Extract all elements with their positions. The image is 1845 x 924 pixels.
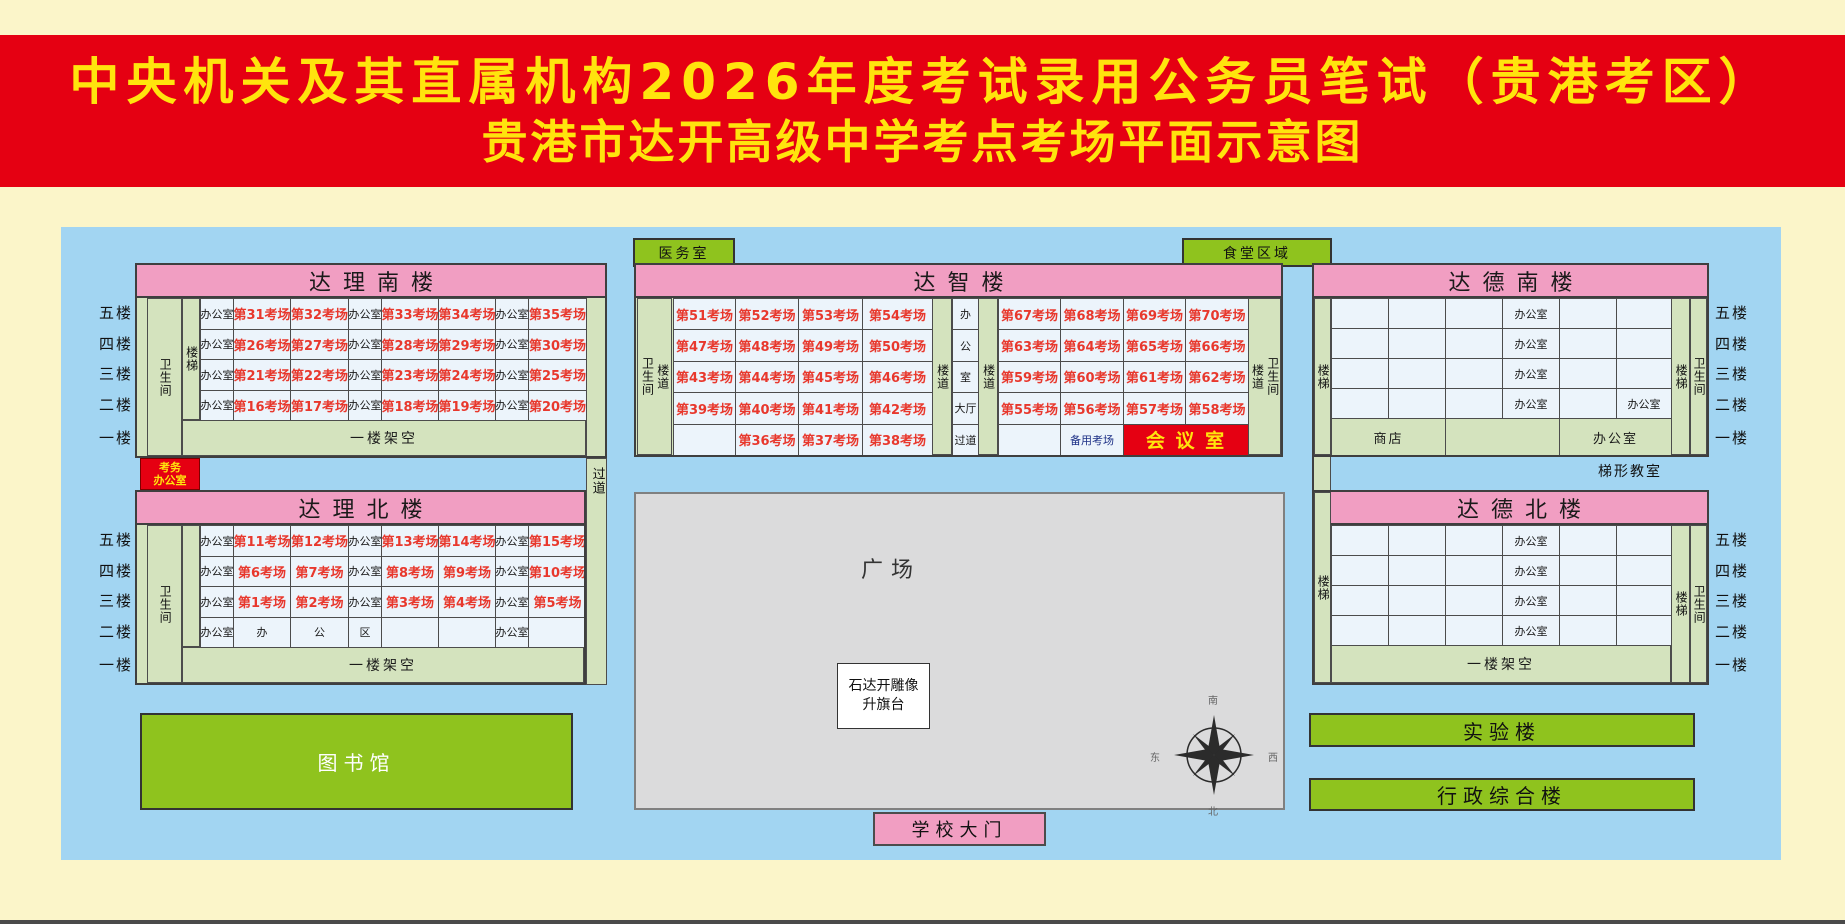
- stairwell-column: 楼梯: [1314, 298, 1331, 455]
- grid-row: 办公室第26考场第27考场办公室第28考场第29考场办公室第30考场: [201, 330, 587, 361]
- exam-room-cell: 第41考场: [799, 393, 863, 424]
- empty-cell: [1446, 329, 1503, 359]
- building-title: 达德南楼: [1314, 265, 1707, 298]
- empty-cell: [1446, 299, 1503, 329]
- grid-row: 办公室第21考场第22考场办公室第23考场第24考场办公室第25考场: [201, 360, 587, 391]
- exam-affairs-office-line1: 考务: [159, 461, 181, 474]
- room-cell: 区: [349, 618, 382, 649]
- empty-cell: [1617, 556, 1672, 586]
- empty-cell: [1332, 586, 1389, 616]
- corridor-strip: [586, 298, 605, 456]
- building-dade-north: 楼梯 达德北楼 办公室办公室办公室办公室 一楼架空 楼梯 卫生间: [1312, 490, 1709, 685]
- empty-cell: [1332, 389, 1389, 419]
- building-dali-south: 达理南楼 卫生间 楼梯 办公室第31考场第32考场办公室第33考场第34考场办公…: [135, 263, 607, 458]
- exam-room-cell: 第20考场: [529, 391, 587, 422]
- compass-south-label: 南: [1208, 692, 1218, 707]
- empty-cell: [1332, 526, 1389, 556]
- room-cell: 办公室: [201, 557, 234, 588]
- exam-room-cell: 第18考场: [382, 391, 439, 422]
- floor-label: 五楼: [98, 302, 134, 323]
- building-body: 卫生间 办公室第11考场第12考场办公室第13考场第14考场办公室第15考场办公…: [137, 525, 584, 683]
- hallway-restroom-column: 楼道 卫生间: [1248, 298, 1281, 455]
- stairwell-column: 楼梯: [1671, 525, 1690, 683]
- lab-building: 实验楼: [1309, 713, 1695, 747]
- empty-cell: [1617, 329, 1672, 359]
- grid-row: 办: [953, 299, 979, 330]
- office-room-grid: 办公室办公室办公室办公室办公室: [1331, 298, 1672, 419]
- grid-row: 第43考场第44考场第45考场第46考场: [674, 362, 933, 393]
- room-cell: 办公室: [201, 391, 234, 422]
- empty-cell: [1617, 359, 1672, 389]
- exam-room-cell: 第57考场: [1124, 393, 1186, 424]
- exam-room-cell: 第63考场: [999, 330, 1061, 361]
- grid-row: 大厅: [953, 393, 979, 424]
- compass-north-label: 北: [1208, 803, 1218, 818]
- building-title: 达德北楼: [1331, 492, 1707, 525]
- exam-room-cell: 第23考场: [382, 360, 439, 391]
- room-cell: 办: [953, 299, 979, 330]
- exam-room-cell: 第11考场: [234, 526, 291, 557]
- statue-flag-platform: 石达开雕像 升旗台: [837, 663, 930, 729]
- floor-label: 二楼: [98, 394, 134, 415]
- empty-cell: [1560, 616, 1617, 646]
- exam-room-cell: 第40考场: [736, 393, 799, 424]
- room-cell: 办公室: [349, 526, 382, 557]
- exam-room-cell: 第22考场: [291, 360, 349, 391]
- floor-label: 三楼: [1714, 590, 1750, 611]
- room-cell: 办公室: [496, 299, 529, 330]
- admin-building: 行政综合楼: [1309, 778, 1695, 811]
- empty-cell: [1446, 419, 1560, 456]
- exam-room-cell: 第58考场: [1186, 393, 1249, 424]
- exam-room-cell: 第65考场: [1124, 330, 1186, 361]
- exam-room-cell: 第69考场: [1124, 299, 1186, 330]
- empty-cell: [1389, 329, 1446, 359]
- exam-room-cell: 第17考场: [291, 391, 349, 422]
- school-gate: 学校大门: [873, 812, 1046, 846]
- exam-room-cell: 第47考场: [674, 330, 736, 361]
- exam-room-cell: 第70考场: [1186, 299, 1249, 330]
- building-title: 达智楼: [636, 265, 1281, 298]
- stairwell-column: 楼梯: [1314, 492, 1331, 683]
- exam-room-cell: 第6考场: [234, 557, 291, 588]
- grid-row: 办公室: [1332, 616, 1672, 646]
- grid-row: 过道: [953, 425, 979, 456]
- floor-labels-dade-north: 五楼四楼三楼二楼一楼: [1714, 523, 1750, 685]
- floor-label: 一楼: [1714, 427, 1750, 448]
- exam-room-cell: 第26考场: [234, 330, 291, 361]
- exam-room-cell: 第5考场: [529, 587, 586, 618]
- exam-affairs-office-line2: 办公室: [154, 474, 187, 487]
- room-cell: 商店: [1332, 419, 1446, 456]
- exam-room-cell: 第55考场: [999, 393, 1061, 424]
- grid-row: 第55考场第56考场第57考场第58考场: [999, 393, 1249, 424]
- room-cell: 办公室: [1503, 359, 1560, 389]
- room-cell: 办公室: [349, 330, 382, 361]
- room-cell: 办公室: [201, 330, 234, 361]
- empty-cell: [1332, 359, 1389, 389]
- room-cell: 办: [234, 618, 291, 649]
- room-cell: 办公室: [1503, 586, 1560, 616]
- room-cell: 办公室: [496, 360, 529, 391]
- building-dali-north: 达理北楼 卫生间 办公室第11考场第12考场办公室第13考场第14考场办公室第1…: [135, 490, 586, 685]
- exam-room-cell: 第15考场: [529, 526, 586, 557]
- building-body: 卫生间 楼道 第51考场第52考场第53考场第54考场第47考场第48考场第49…: [636, 298, 1281, 455]
- plaza: 广场 石达开雕像 升旗台 南 北 东 西: [634, 492, 1285, 810]
- office-room-grid: 办公室办公室办公室办公室: [1331, 525, 1672, 646]
- meeting-cell: 会 议 室: [1124, 425, 1249, 456]
- empty-cell: [1332, 556, 1389, 586]
- grid-row: 办公室第1考场第2考场办公室第3考场第4考场办公室第5考场: [201, 587, 586, 618]
- exam-room-cell: 第53考场: [799, 299, 863, 330]
- exam-room-cell: 第38考场: [863, 425, 933, 456]
- banner: 中央机关及其直属机构2026年度考试录用公务员笔试（贵港考区） 贵港市达开高级中…: [0, 35, 1845, 187]
- plaza-label: 广场: [846, 552, 936, 584]
- exam-room-cell: 第43考场: [674, 362, 736, 393]
- room-cell: 办公室: [1560, 419, 1672, 456]
- empty-cell: [1332, 299, 1389, 329]
- exam-room-cell: 第50考场: [863, 330, 933, 361]
- exam-room-cell: 第51考场: [674, 299, 736, 330]
- exam-room-cell: 第19考场: [439, 391, 496, 422]
- exam-room-cell: 第28考场: [382, 330, 439, 361]
- exam-room-cell: 第59考场: [999, 362, 1061, 393]
- empty-cell: [1560, 586, 1617, 616]
- room-cell: 办公室: [201, 360, 234, 391]
- exam-room-cell: 第24考场: [439, 360, 496, 391]
- floor-label: 二楼: [1714, 621, 1750, 642]
- empty-cell: [999, 425, 1061, 456]
- floor-label: 二楼: [98, 621, 134, 642]
- room-cell: 办公室: [349, 587, 382, 618]
- room-cell: 办公室: [349, 557, 382, 588]
- spare-cell: 备用考场: [1061, 425, 1124, 456]
- building-title: 达理南楼: [137, 265, 605, 298]
- floor-labels-dade-south: 五楼四楼三楼二楼一楼: [1714, 296, 1750, 458]
- statue-label-line1: 石达开雕像: [849, 677, 919, 696]
- empty-cell: [1617, 299, 1672, 329]
- stairwell-column: 楼梯: [1671, 298, 1690, 455]
- room-cell: 大厅: [953, 393, 979, 424]
- exam-room-cell: 第61考场: [1124, 362, 1186, 393]
- floor-label: 三楼: [98, 590, 134, 611]
- corridor: 过道: [586, 458, 607, 685]
- banner-title-line1: 中央机关及其直属机构2026年度考试录用公务员笔试（贵港考区）: [69, 51, 1775, 113]
- floor-label: 四楼: [1714, 333, 1750, 354]
- stairwell-column: 楼梯: [182, 298, 200, 420]
- exam-room-cell: 第34考场: [439, 299, 496, 330]
- exam-room-grid-west: 第51考场第52考场第53考场第54考场第47考场第48考场第49考场第50考场…: [673, 298, 933, 456]
- empty-cell: [1617, 616, 1672, 646]
- grid-row: 公: [953, 330, 979, 361]
- building-title: 达理北楼: [137, 492, 584, 525]
- empty-cell: [1389, 556, 1446, 586]
- empty-cell: [1389, 586, 1446, 616]
- exam-room-cell: 第66考场: [1186, 330, 1249, 361]
- empty-cell: [1560, 526, 1617, 556]
- empty-cell: [1560, 389, 1617, 419]
- empty-cell: [1560, 299, 1617, 329]
- exam-room-cell: 第56考场: [1061, 393, 1124, 424]
- floor-label: 三楼: [1714, 363, 1750, 384]
- floor-label: 四楼: [98, 560, 134, 581]
- empty-cell: [1389, 616, 1446, 646]
- grid-row: 办公室第11考场第12考场办公室第13考场第14考场办公室第15考场: [201, 526, 586, 557]
- empty-cell: [1389, 389, 1446, 419]
- room-cell: 公: [291, 618, 349, 649]
- exam-room-cell: 第31考场: [234, 299, 291, 330]
- compass-east-label: 东: [1150, 749, 1160, 764]
- room-cell: 办公室: [349, 391, 382, 422]
- empty-cell: [1617, 526, 1672, 556]
- restroom-column: 卫生间: [147, 525, 182, 683]
- exam-room-cell: 第8考场: [382, 557, 439, 588]
- office-hall-column: 办公室大厅过道: [952, 298, 979, 456]
- exam-affairs-office: 考务 办公室: [140, 458, 200, 490]
- exam-room-cell: 第12考场: [291, 526, 349, 557]
- floor-label: 四楼: [98, 333, 134, 354]
- empty-cell: [1446, 616, 1503, 646]
- room-cell: 办公室: [1503, 299, 1560, 329]
- empty-cell: [1446, 556, 1503, 586]
- grid-row: 第39考场第40考场第41考场第42考场: [674, 393, 933, 424]
- room-cell: 办公室: [496, 557, 529, 588]
- grid-row: 办公室: [1332, 586, 1672, 616]
- exam-site-poster: 中央机关及其直属机构2026年度考试录用公务员笔试（贵港考区） 贵港市达开高级中…: [0, 0, 1845, 924]
- room-cell: 办公室: [496, 618, 529, 649]
- hallway-column: 楼道: [978, 298, 998, 455]
- room-cell: 办公室: [349, 360, 382, 391]
- room-cell: 过道: [953, 425, 979, 456]
- floor-label: 五楼: [1714, 529, 1750, 550]
- exam-room-cell: 第7考场: [291, 557, 349, 588]
- grid-row: 第67考场第68考场第69考场第70考场: [999, 299, 1249, 330]
- grid-row: 办公室第16考场第17考场办公室第18考场第19考场办公室第20考场: [201, 391, 587, 422]
- empty-cell: [1446, 359, 1503, 389]
- room-cell: 办公室: [1503, 389, 1560, 419]
- bottom-edge: [0, 920, 1845, 924]
- floor-label: 五楼: [1714, 302, 1750, 323]
- exam-room-cell: 第30考场: [529, 330, 587, 361]
- exam-room-cell: 第10考场: [529, 557, 586, 588]
- grid-row: 商店办公室: [1332, 419, 1672, 456]
- exam-room-cell: 第21考场: [234, 360, 291, 391]
- exam-room-cell: 第60考场: [1061, 362, 1124, 393]
- room-cell: 办公室: [201, 299, 234, 330]
- compass-rose: 南 北 东 西: [1164, 705, 1264, 805]
- empty-cell: [439, 618, 496, 649]
- grid-row: 办公室第6考场第7考场办公室第8考场第9考场办公室第10考场: [201, 557, 586, 588]
- building-dade-south: 达德南楼 楼梯 办公室办公室办公室办公室办公室 商店办公室 楼梯 卫生间: [1312, 263, 1709, 457]
- compass-west-label: 西: [1268, 749, 1278, 764]
- grid-row: 办公室第31考场第32考场办公室第33考场第34考场办公室第35考场: [201, 299, 587, 330]
- stairwell-connector: [1312, 457, 1331, 492]
- room-cell: 办公室: [496, 526, 529, 557]
- room-cell: 办公室: [1503, 556, 1560, 586]
- grid-row: 第51考场第52考场第53考场第54考场: [674, 299, 933, 330]
- floor-label: 五楼: [98, 529, 134, 550]
- exam-room-cell: 第1考场: [234, 587, 291, 618]
- exam-room-cell: 第67考场: [999, 299, 1061, 330]
- grid-row: 办公室: [1332, 359, 1672, 389]
- statue-label-line2: 升旗台: [863, 696, 905, 715]
- empty-cell: [1617, 586, 1672, 616]
- exam-room-cell: 第64考场: [1061, 330, 1124, 361]
- empty-cell: [529, 618, 586, 649]
- banner-title-line2: 贵港市达开高级中学考点考场平面示意图: [482, 113, 1364, 171]
- exam-room-cell: 第62考场: [1186, 362, 1249, 393]
- exam-room-cell: 第42考场: [863, 393, 933, 424]
- floor-label: 二楼: [1714, 394, 1750, 415]
- exam-room-cell: 第13考场: [382, 526, 439, 557]
- exam-room-cell: 第48考场: [736, 330, 799, 361]
- room-cell: 办公室: [496, 330, 529, 361]
- room-cell: 办公室: [496, 391, 529, 422]
- empty-cell: [1560, 359, 1617, 389]
- hallway-column: 楼道: [932, 298, 952, 455]
- exam-room-cell: 第35考场: [529, 299, 587, 330]
- exam-room-cell: 第2考场: [291, 587, 349, 618]
- exam-room-grid: 办公室第31考场第32考场办公室第33考场第34考场办公室第35考场办公室第26…: [200, 298, 587, 421]
- building-dazhi: 达智楼 卫生间 楼道 第51考场第52考场第53考场第54考场第47考场第48考…: [634, 263, 1283, 457]
- grid-row: 第63考场第64考场第65考场第66考场: [999, 330, 1249, 361]
- room-cell: 办公室: [1503, 616, 1560, 646]
- exam-room-cell: 第14考场: [439, 526, 496, 557]
- exam-room-cell: 第27考场: [291, 330, 349, 361]
- grid-row: 办公室: [1332, 299, 1672, 329]
- restroom-column: 卫生间: [1690, 525, 1707, 683]
- exam-room-cell: 第45考场: [799, 362, 863, 393]
- room-cell: 室: [953, 362, 979, 393]
- exam-room-cell: 第16考场: [234, 391, 291, 422]
- exam-room-cell: 第54考场: [863, 299, 933, 330]
- exam-room-cell: 第4考场: [439, 587, 496, 618]
- floor-label: 三楼: [98, 363, 134, 384]
- grid-row: 办公室: [1332, 526, 1672, 556]
- exam-room-cell: 第33考场: [382, 299, 439, 330]
- empty-cell: [1389, 526, 1446, 556]
- empty-cell: [1446, 389, 1503, 419]
- grid-row: 办公室: [1332, 329, 1672, 359]
- ground-floor-label: 一楼架空: [1331, 645, 1671, 683]
- exam-room-cell: 第29考场: [439, 330, 496, 361]
- room-cell: 办公室: [201, 526, 234, 557]
- room-cell: 办公室: [349, 299, 382, 330]
- compass-icon: [1164, 705, 1264, 805]
- exam-room-cell: 第37考场: [799, 425, 863, 456]
- empty-cell: [1560, 329, 1617, 359]
- empty-cell: [1332, 616, 1389, 646]
- exam-room-cell: 第36考场: [736, 425, 799, 456]
- library: 图书馆: [140, 713, 573, 810]
- room-cell: 办公室: [496, 587, 529, 618]
- exam-room-cell: 第44考场: [736, 362, 799, 393]
- grid-row: 第59考场第60考场第61考场第62考场: [999, 362, 1249, 393]
- trapezoid-classroom-label: 梯形教室: [1560, 461, 1700, 481]
- exam-room-cell: 第25考场: [529, 360, 587, 391]
- exam-room-cell: 第32考场: [291, 299, 349, 330]
- ground-floor-row: 商店办公室: [1331, 418, 1672, 456]
- exam-room-cell: 第9考场: [439, 557, 496, 588]
- restroom-hallway-column: 卫生间 楼道: [637, 298, 672, 455]
- exam-room-cell: 第46考场: [863, 362, 933, 393]
- exam-room-cell: 第52考场: [736, 299, 799, 330]
- exam-room-grid: 办公室第11考场第12考场办公室第13考场第14考场办公室第15考场办公室第6考…: [200, 525, 586, 648]
- floor-label: 一楼: [98, 654, 134, 675]
- grid-row: 备用考场会 议 室: [999, 425, 1249, 456]
- room-cell: 办公室: [1503, 329, 1560, 359]
- room-cell: 办公室: [1617, 389, 1672, 419]
- room-cell: 办公室: [201, 587, 234, 618]
- ground-floor-label: 一楼架空: [182, 420, 586, 456]
- empty-cell: [382, 618, 439, 649]
- room-cell: 公: [953, 330, 979, 361]
- building-body: 楼梯 办公室办公室办公室办公室办公室 商店办公室 楼梯 卫生间: [1314, 298, 1707, 455]
- ground-floor-label: 一楼架空: [182, 647, 584, 683]
- floor-label: 四楼: [1714, 560, 1750, 581]
- empty-cell: [1446, 526, 1503, 556]
- grid-row: 第47考场第48考场第49考场第50考场: [674, 330, 933, 361]
- restroom-column: 卫生间: [1690, 298, 1707, 455]
- empty-cell: [674, 425, 736, 456]
- grid-row: 办公室: [1332, 556, 1672, 586]
- stairwell-column: [182, 525, 200, 647]
- grid-row: 室: [953, 362, 979, 393]
- floor-label: 一楼: [1714, 654, 1750, 675]
- exam-room-cell: 第68考场: [1061, 299, 1124, 330]
- exam-room-cell: 第3考场: [382, 587, 439, 618]
- exam-room-cell: 第39考场: [674, 393, 736, 424]
- empty-cell: [1389, 359, 1446, 389]
- restroom-column: 卫生间: [147, 298, 182, 456]
- exam-room-grid-east: 第67考场第68考场第69考场第70考场第63考场第64考场第65考场第66考场…: [998, 298, 1249, 456]
- floor-labels-dali-south: 五楼四楼三楼二楼一楼: [98, 296, 134, 458]
- empty-cell: [1332, 329, 1389, 359]
- grid-row: 办公室办公室: [1332, 389, 1672, 419]
- floor-labels-dali-north: 五楼四楼三楼二楼一楼: [98, 523, 134, 685]
- empty-cell: [1389, 299, 1446, 329]
- exam-room-cell: 第49考场: [799, 330, 863, 361]
- building-body: 卫生间 楼梯 办公室第31考场第32考场办公室第33考场第34考场办公室第35考…: [137, 298, 605, 456]
- floor-label: 一楼: [98, 427, 134, 448]
- grid-row: 第36考场第37考场第38考场: [674, 425, 933, 456]
- room-cell: 办公室: [1503, 526, 1560, 556]
- grid-row: 办公室办公区办公室: [201, 618, 586, 649]
- empty-cell: [1560, 556, 1617, 586]
- room-cell: 办公室: [201, 618, 234, 649]
- empty-cell: [1446, 586, 1503, 616]
